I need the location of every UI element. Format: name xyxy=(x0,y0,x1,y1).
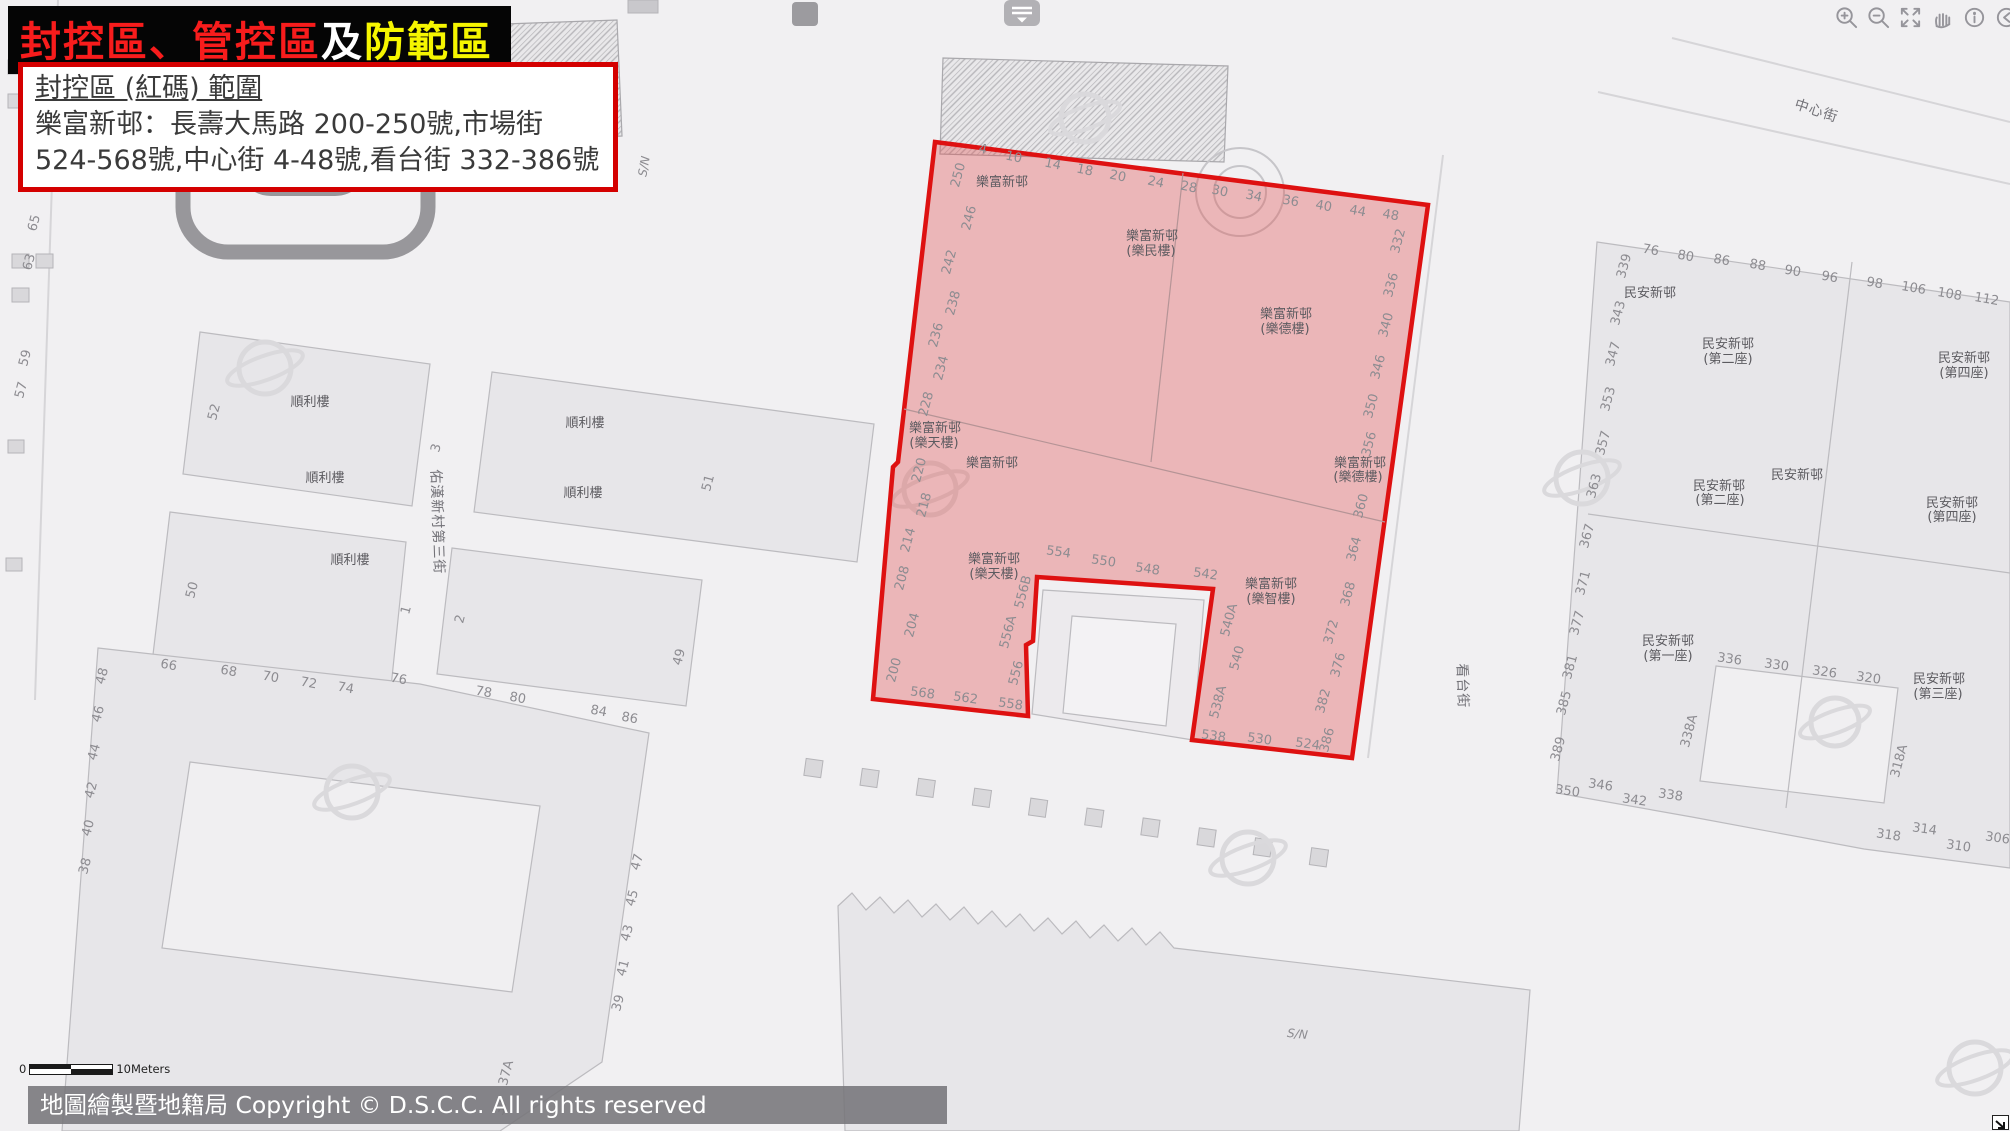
house-number-label: 1 xyxy=(398,604,415,616)
identify-info-icon xyxy=(1962,5,1987,30)
street-label: 佑漢新村第三街 xyxy=(427,469,448,575)
pan-button[interactable] xyxy=(1930,5,1955,30)
building-label: (第三座) xyxy=(1913,687,1962,702)
panel-collapse-icon xyxy=(1002,0,1042,30)
building-label: 順利樓 xyxy=(330,553,369,568)
house-number-label: 72 xyxy=(299,675,318,693)
map-toolbar xyxy=(1834,5,2010,30)
building-label: (第二座) xyxy=(1703,352,1752,367)
house-number-label: 45 xyxy=(623,888,642,908)
house-number-label: 90 xyxy=(1783,263,1802,281)
info-box-title: 封控區 (紅碼) 範圍 xyxy=(35,71,599,107)
house-number-label: 44 xyxy=(1348,203,1367,221)
zoom-out-icon xyxy=(1866,5,1891,30)
zoom-out-button[interactable] xyxy=(1866,5,1891,30)
house-number-label: 39 xyxy=(609,993,628,1013)
scale-bar-segments xyxy=(29,1064,113,1075)
house-number-label: 80 xyxy=(1676,248,1695,266)
building-label: 民安新邨 xyxy=(1913,671,1965,687)
house-number-label: 40 xyxy=(1314,198,1333,216)
building-shun-lei-ne xyxy=(474,372,874,562)
building-label: 樂富新邨 xyxy=(1245,576,1297,592)
house-number-label: 84 xyxy=(589,703,608,721)
street-label: 看台街 xyxy=(1453,663,1471,709)
info-box-line1: 樂富新邨：長壽大馬路 200-250號,市場街 xyxy=(35,107,599,143)
house-number-label: 86 xyxy=(620,710,639,728)
building-shun-lei-se xyxy=(437,548,702,706)
expand-corner-button[interactable] xyxy=(1992,1115,2009,1130)
panel-collapse-button[interactable] xyxy=(1002,0,1042,30)
house-number-label: 3 xyxy=(428,442,445,454)
house-number-label: 80 xyxy=(508,690,527,708)
building-label: 民安新邨 xyxy=(1693,478,1745,494)
full-extent-icon xyxy=(1898,5,1923,30)
scale-bar: 0 10Meters xyxy=(19,1062,170,1076)
house-number-label: 96 xyxy=(1820,269,1839,287)
building-label: (樂德樓) xyxy=(1260,321,1309,337)
previous-extent-icon xyxy=(1994,5,2010,30)
building-label: 樂富新邨 xyxy=(1260,306,1312,322)
lockdown-zone-info-box: 封控區 (紅碼) 範圍 樂富新邨：長壽大馬路 200-250號,市場街 524-… xyxy=(18,62,618,192)
building-label: 順利樓 xyxy=(305,471,344,486)
scale-bar-zero: 0 xyxy=(19,1062,26,1076)
street-label: 中心街 xyxy=(1792,97,1840,126)
banner-red-text: 封控區、管控區 xyxy=(20,18,321,66)
building-market-notch-inner xyxy=(1063,616,1176,726)
building-label: (樂天樓) xyxy=(909,435,958,451)
banner-white-text: 及 xyxy=(321,18,364,66)
building-label: (樂德樓) xyxy=(1333,469,1382,485)
house-number-label: 98 xyxy=(1865,275,1884,293)
building-label: 民安新邨 xyxy=(1926,495,1978,511)
building-label: 樂富新邨 xyxy=(1334,455,1386,471)
attribution-bar: 地圖繪製暨地籍局 Copyright © D.S.C.C. All rights… xyxy=(28,1086,947,1124)
building-label: 順利樓 xyxy=(565,416,604,431)
building-label: 樂富新邨 xyxy=(966,455,1018,471)
building-label: (第二座) xyxy=(1695,493,1744,508)
building-label: 民安新邨 xyxy=(1771,467,1823,483)
building-label: (第四座) xyxy=(1939,366,1988,381)
previous-extent-button[interactable] xyxy=(1994,5,2010,30)
house-number-label: 74 xyxy=(336,680,355,698)
building-label: 民安新邨 xyxy=(1624,285,1676,301)
building-label: (第一座) xyxy=(1643,649,1692,664)
house-number-label: 41 xyxy=(614,958,633,978)
house-number-label: 65 xyxy=(25,213,44,233)
expand-arrow-icon xyxy=(1993,1118,2008,1131)
house-number-label: 86 xyxy=(1712,252,1731,270)
house-number-label: 66 xyxy=(159,657,178,675)
house-number-label: 342 xyxy=(1621,791,1648,809)
house-number-label: 36 xyxy=(1281,193,1300,211)
building-label: 樂富新邨 xyxy=(909,420,961,436)
house-number-label: 76 xyxy=(389,671,408,689)
building-label: 順利樓 xyxy=(290,395,329,410)
building-label: (樂民樓) xyxy=(1126,243,1175,259)
house-number-label: 48 xyxy=(1381,207,1400,225)
building-label: (樂天樓) xyxy=(969,566,1018,582)
map-application-window: 4101418202428303436404448250246242238236… xyxy=(0,0,2010,1131)
zoom-in-button[interactable] xyxy=(1834,5,1859,30)
pan-hand-icon xyxy=(1930,5,1955,30)
building-label: 樂富新邨 xyxy=(1126,228,1178,244)
house-number-label: 76 xyxy=(1641,242,1660,260)
building-label: 民安新邨 xyxy=(1642,633,1694,649)
building-label: (樂智樓) xyxy=(1246,591,1295,607)
scale-bar-label: 10Meters xyxy=(116,1062,170,1076)
building-label: 樂富新邨 xyxy=(968,551,1020,567)
house-number-label: 57 xyxy=(12,380,31,400)
house-number-label: 88 xyxy=(1748,257,1767,275)
building-label: 樂富新邨 xyxy=(976,174,1028,190)
house-number-label: 47 xyxy=(628,852,647,872)
house-number-label: 43 xyxy=(618,923,637,943)
house-number-label: 70 xyxy=(261,669,280,687)
house-number-label: 59 xyxy=(16,348,35,368)
building-label: 順利樓 xyxy=(563,486,602,501)
house-number-label: 78 xyxy=(474,684,493,702)
full-extent-button[interactable] xyxy=(1898,5,1923,30)
banner-yellow-text: 防範區 xyxy=(364,18,493,66)
house-number-label: 350 xyxy=(1554,782,1581,800)
building-label: 民安新邨 xyxy=(1702,336,1754,352)
unnamed-street-label: S/N xyxy=(635,155,652,178)
house-number-label: 68 xyxy=(219,663,238,681)
building-label: (第四座) xyxy=(1927,510,1976,525)
building-label: 民安新邨 xyxy=(1938,350,1990,366)
unnamed-street-label: S/N xyxy=(1286,1026,1308,1042)
zoom-in-icon xyxy=(1834,5,1859,30)
info-box-line2: 524-568號,中心街 4-48號,看台街 332-386號 xyxy=(35,143,599,179)
identify-button[interactable] xyxy=(1962,5,1987,30)
